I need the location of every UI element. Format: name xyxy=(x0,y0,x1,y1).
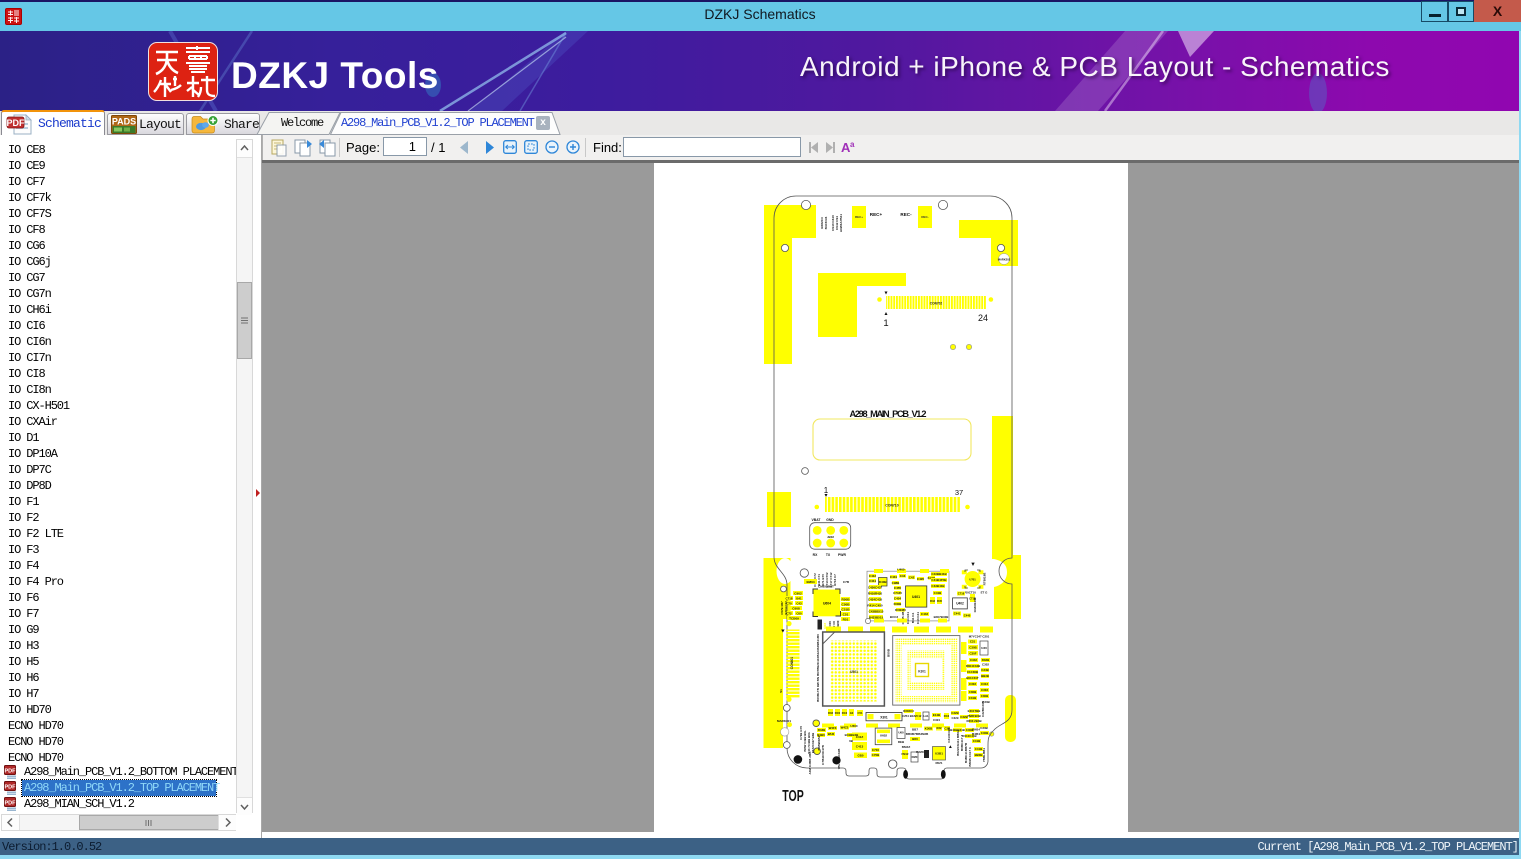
svg-text:R45: R45 xyxy=(937,599,942,603)
svg-text:DOEM0: DOEM0 xyxy=(895,608,906,612)
svg-text:VBAT: VBAT xyxy=(812,518,822,522)
svg-text:B01C31T: B01C31T xyxy=(966,676,979,680)
svg-text:C254 B12: C254 B12 xyxy=(902,714,915,718)
svg-text:C324: C324 xyxy=(933,718,940,722)
svg-text:REC-: REC- xyxy=(900,212,912,217)
svg-text:C30B: C30B xyxy=(969,690,976,694)
svg-text:C420: C420 xyxy=(917,577,925,581)
svg-text:C30B: C30B xyxy=(969,646,976,650)
svg-text:C31: C31 xyxy=(970,640,976,644)
svg-text:C303: C303 xyxy=(981,688,988,692)
svg-text:H6W6A7B41: H6W6A7B41 xyxy=(839,214,843,233)
svg-text:R51: R51 xyxy=(843,617,849,621)
svg-text:RC3: RC3 xyxy=(944,714,950,718)
svg-text:C329: C329 xyxy=(952,716,959,720)
svg-text:X301: X301 xyxy=(880,716,888,720)
svg-text:R436R437: R436R437 xyxy=(973,597,977,612)
svg-text:R416R420: R416R420 xyxy=(868,591,883,595)
svg-text:W4F3: W4F3 xyxy=(829,726,837,730)
svg-text:PDF: PDF xyxy=(5,801,17,807)
svg-text:U701: U701 xyxy=(969,578,976,582)
svg-text:C441: C441 xyxy=(954,612,961,616)
svg-text:C7B4C0C47B: C7B4C0C47B xyxy=(821,744,825,765)
svg-text:FM1Z: FM1Z xyxy=(901,752,908,756)
svg-text:C51: C51 xyxy=(843,612,849,616)
svg-text:R414 C450: R414 C450 xyxy=(867,603,883,607)
svg-text:R303 2B3B: R303 2B3B xyxy=(966,719,981,723)
svg-text:B41: B41 xyxy=(796,596,802,600)
svg-text:C902: C902 xyxy=(794,591,802,595)
svg-text:B407B40B: B407B40B xyxy=(934,615,950,619)
svg-text:U600: U600 xyxy=(850,724,858,728)
svg-text:C412: C412 xyxy=(869,574,877,578)
svg-text:GND: GND xyxy=(826,518,834,522)
svg-text:C51B: C51B xyxy=(842,607,851,611)
svg-text:BB0B7BB3N3B: BB0B7BB3N3B xyxy=(906,732,929,736)
svg-text:PWR: PWR xyxy=(838,553,846,557)
svg-text:C43: C43 xyxy=(900,574,906,578)
svg-text:C30F: C30F xyxy=(969,652,976,656)
svg-text:C455: C455 xyxy=(894,586,902,590)
svg-text:U402: U402 xyxy=(956,602,964,606)
svg-text:CON702: CON702 xyxy=(930,302,943,306)
svg-text:RT9818B: RT9818B xyxy=(983,572,987,586)
svg-text:C43B41B: C43B41B xyxy=(931,584,945,588)
svg-text:RC0: RC0 xyxy=(835,711,841,715)
svg-text:24: 24 xyxy=(978,313,988,323)
svg-text:TX: TX xyxy=(826,553,831,557)
svg-text:U60: U60 xyxy=(898,731,904,735)
svg-text:VC12: VC12 xyxy=(915,714,922,718)
svg-text:B2C4 C12: B2C4 C12 xyxy=(784,601,788,615)
svg-text:MARK202: MARK202 xyxy=(998,257,1011,261)
svg-text:BM4Z: BM4Z xyxy=(902,745,911,749)
svg-text:C42: C42 xyxy=(909,575,915,579)
svg-text:R304C34B: R304C34B xyxy=(966,664,980,668)
svg-text:EM64: EM64 xyxy=(806,580,814,584)
svg-text:B00BLTB RW BN BN7B92C410B423S0: B00BLTB RW BN BN7B92C410B423S09B41B0 xyxy=(816,634,820,702)
svg-text:R43: R43 xyxy=(930,599,935,603)
svg-text:PADS: PADS xyxy=(112,117,136,127)
svg-text:S1: S1 xyxy=(779,689,783,693)
svg-text:PDF: PDF xyxy=(5,785,17,791)
svg-text:7NRFB3B: 7NRFB3B xyxy=(967,714,980,718)
svg-text:U30: U30 xyxy=(981,646,987,650)
svg-text:WH0: WH0 xyxy=(828,732,835,736)
svg-text:A0M C3BB 2BA: A0M C3BB 2BA xyxy=(808,751,812,775)
svg-text:CON801: CON801 xyxy=(790,657,794,670)
svg-text:C1C30B: C1C30B xyxy=(967,670,978,674)
svg-text:B4C8 R6: B4C8 R6 xyxy=(824,216,828,229)
svg-text:C41B: C41B xyxy=(973,739,980,743)
svg-text:U604: U604 xyxy=(823,602,831,606)
svg-text:BHB4: BHB4 xyxy=(972,728,980,732)
svg-text:C30B: C30B xyxy=(981,694,988,698)
svg-text:RX: RX xyxy=(813,553,818,557)
svg-text:GB0: GB0 xyxy=(858,754,864,758)
svg-text:C454: C454 xyxy=(894,596,902,600)
svg-text:C60: C60 xyxy=(796,611,802,615)
svg-text:C50B: C50B xyxy=(842,602,851,606)
svg-text:TCB09: TCB09 xyxy=(789,616,799,620)
svg-text:C434C435: C434C435 xyxy=(868,597,883,601)
svg-text:C40B: C40B xyxy=(981,731,988,735)
svg-text:C34B: C34B xyxy=(981,668,988,672)
svg-text:C716: C716 xyxy=(958,592,965,596)
svg-text:R22D: R22D xyxy=(916,750,925,754)
svg-text:C7445: C7445 xyxy=(893,591,902,595)
svg-text:BB4B C317 3: BB4B C317 3 xyxy=(968,747,972,767)
svg-text:G0: G0 xyxy=(850,711,854,715)
svg-text:C440: C440 xyxy=(964,614,971,618)
svg-text:C43: C43 xyxy=(796,601,802,605)
svg-text:U400: U400 xyxy=(897,568,905,572)
svg-text:R0Z1: R0Z1 xyxy=(935,761,942,765)
svg-text:BB3B: BB3B xyxy=(981,674,989,678)
svg-text:C303: C303 xyxy=(969,682,976,686)
svg-text:C43BB515: C43BB515 xyxy=(869,609,884,613)
svg-text:K30B: K30B xyxy=(925,727,932,731)
svg-text:LA1: LA1 xyxy=(923,714,929,718)
svg-text:R43B: R43B xyxy=(818,728,825,732)
svg-text:C43 C41: C43 C41 xyxy=(916,612,920,624)
svg-text:D40B: D40B xyxy=(879,580,888,584)
svg-text:C710: C710 xyxy=(872,748,880,752)
svg-text:C43BB41B: C43BB41B xyxy=(931,572,947,576)
svg-text:C431: C431 xyxy=(890,575,898,579)
svg-text:E14B: E14B xyxy=(933,713,940,717)
svg-text:JB02: JB02 xyxy=(827,535,834,539)
svg-text:M7YC347 C201: M7YC347 C201 xyxy=(969,635,990,639)
svg-text:1: 1 xyxy=(824,486,829,495)
svg-text:C342: C342 xyxy=(970,658,977,662)
svg-text:PDF: PDF xyxy=(7,118,26,128)
svg-text:REC-: REC- xyxy=(921,215,928,219)
svg-text:TOP: TOP xyxy=(782,788,804,805)
svg-text:RC3: RC3 xyxy=(842,711,848,715)
svg-text:U602: U602 xyxy=(880,734,888,738)
svg-text:C413: C413 xyxy=(856,744,864,748)
svg-text:B41BB4B: B41BB4B xyxy=(845,733,860,737)
svg-text:C32B: C32B xyxy=(951,711,958,715)
svg-text:B50B: B50B xyxy=(886,648,890,657)
svg-text:C411: C411 xyxy=(869,579,876,583)
svg-text:CN9506MT: CN9506MT xyxy=(818,585,834,589)
svg-text:C313: C313 xyxy=(981,682,988,686)
svg-text:R50B: R50B xyxy=(842,597,851,601)
svg-text:REB: REB xyxy=(898,740,905,744)
svg-text:PDF: PDF xyxy=(5,769,17,775)
svg-text:ET G: ET G xyxy=(981,591,988,595)
svg-text:C302: C302 xyxy=(982,663,989,667)
svg-text:CON710: CON710 xyxy=(885,504,898,508)
svg-text:DM0: DM0 xyxy=(912,755,918,759)
svg-text:B60: B60 xyxy=(912,737,918,741)
svg-text:B1Z2C417 B4B: B1Z2C417 B4B xyxy=(811,733,815,754)
svg-text:K301: K301 xyxy=(918,670,926,674)
svg-text:W4Z2: W4Z2 xyxy=(841,726,849,730)
svg-text:R03: R03 xyxy=(828,711,833,715)
svg-text:R40B: R40B xyxy=(894,602,903,606)
svg-text:U3B1: U3B1 xyxy=(935,752,943,756)
svg-text:E301TBB: E301TBB xyxy=(968,709,981,713)
svg-text:37: 37 xyxy=(955,488,963,497)
svg-text:C7B: C7B xyxy=(843,580,850,584)
svg-text:C33B: C33B xyxy=(980,726,987,730)
svg-text:REC+: REC+ xyxy=(855,215,863,219)
svg-text:C41B: C41B xyxy=(934,591,943,595)
svg-text:B41 C4: B41 C4 xyxy=(911,612,915,623)
svg-text:U501: U501 xyxy=(850,670,858,674)
svg-text:B4B4: B4B4 xyxy=(972,732,980,736)
svg-text:C41B4P4B: C41B4P4B xyxy=(931,578,947,582)
svg-text:R302C3: R302C3 xyxy=(903,709,914,713)
svg-text:REC+: REC+ xyxy=(870,212,883,217)
svg-text:A298_MAIN_PCB_V1.2: A298_MAIN_PCB_V1.2 xyxy=(850,409,927,419)
svg-text:1: 1 xyxy=(883,318,888,329)
svg-text:C436C437: C436C437 xyxy=(868,585,883,589)
svg-text:BB7: BB7 xyxy=(912,728,918,732)
svg-text:C718: C718 xyxy=(786,596,793,600)
svg-text:C443: C443 xyxy=(921,612,929,616)
svg-text:a: a xyxy=(850,140,855,149)
svg-text:C32BC33B: C32BC33B xyxy=(981,700,985,717)
svg-text:U401: U401 xyxy=(912,595,920,599)
svg-text:C98B: C98B xyxy=(892,581,901,585)
svg-text:C70B: C70B xyxy=(872,753,881,757)
svg-text:C608: C608 xyxy=(792,606,800,610)
svg-text:C31B: C31B xyxy=(969,696,976,700)
svg-text:C51: C51 xyxy=(858,711,863,715)
svg-text:BB0B: BB0B xyxy=(975,753,983,757)
svg-text:R22: R22 xyxy=(937,726,942,730)
svg-text:BCC3: BCC3 xyxy=(890,615,898,619)
